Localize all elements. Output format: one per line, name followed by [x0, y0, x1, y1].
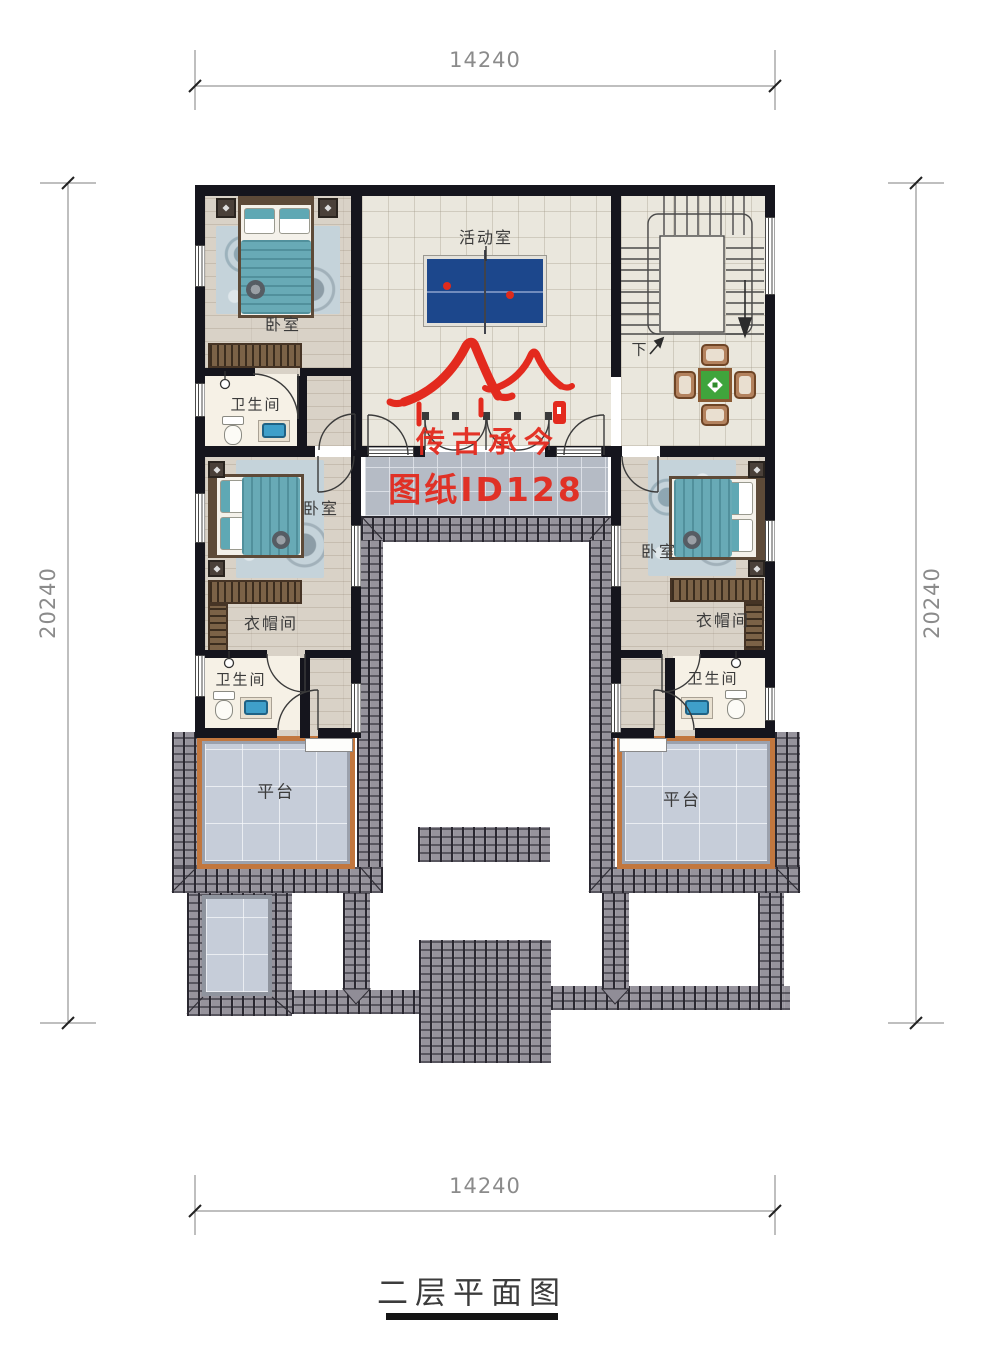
room-label-terrace-right: 平台	[663, 786, 701, 811]
room-label-bathroom-top-left: 卫生间	[230, 394, 281, 415]
room-label-cloakroom-right: 衣帽间	[696, 607, 750, 631]
stair-down-label: 下	[631, 339, 648, 360]
dimension-right: 20240	[920, 567, 944, 639]
brand-roof-logo	[390, 342, 572, 424]
floor-plan-canvas: 14240 14240 20240 20240 活动室 卧室 卫生间 卧室 衣帽…	[0, 0, 1000, 1368]
room-label-terrace-left: 平台	[257, 778, 295, 803]
room-label-bedroom-top-left: 卧室	[265, 311, 301, 335]
room-label-bathroom-right: 卫生间	[687, 668, 738, 689]
room-label-bedroom-left: 卧室	[303, 495, 339, 519]
room-label-activity: 活动室	[459, 224, 513, 248]
dimension-top: 14240	[449, 48, 521, 72]
page-title: 二层平面图	[377, 1268, 567, 1313]
room-label-cloakroom-left: 衣帽间	[244, 610, 298, 634]
dimension-bottom: 14240	[449, 1174, 521, 1198]
plan-linework	[0, 0, 1000, 1368]
dimension-left: 20240	[36, 567, 60, 639]
brand-watermark: 传古承今	[416, 419, 560, 461]
title-underline	[386, 1313, 558, 1320]
room-label-bathroom-left: 卫生间	[215, 669, 266, 690]
sheet-id-watermark: 图纸ID128	[388, 463, 584, 511]
room-label-bedroom-right: 卧室	[641, 538, 677, 562]
